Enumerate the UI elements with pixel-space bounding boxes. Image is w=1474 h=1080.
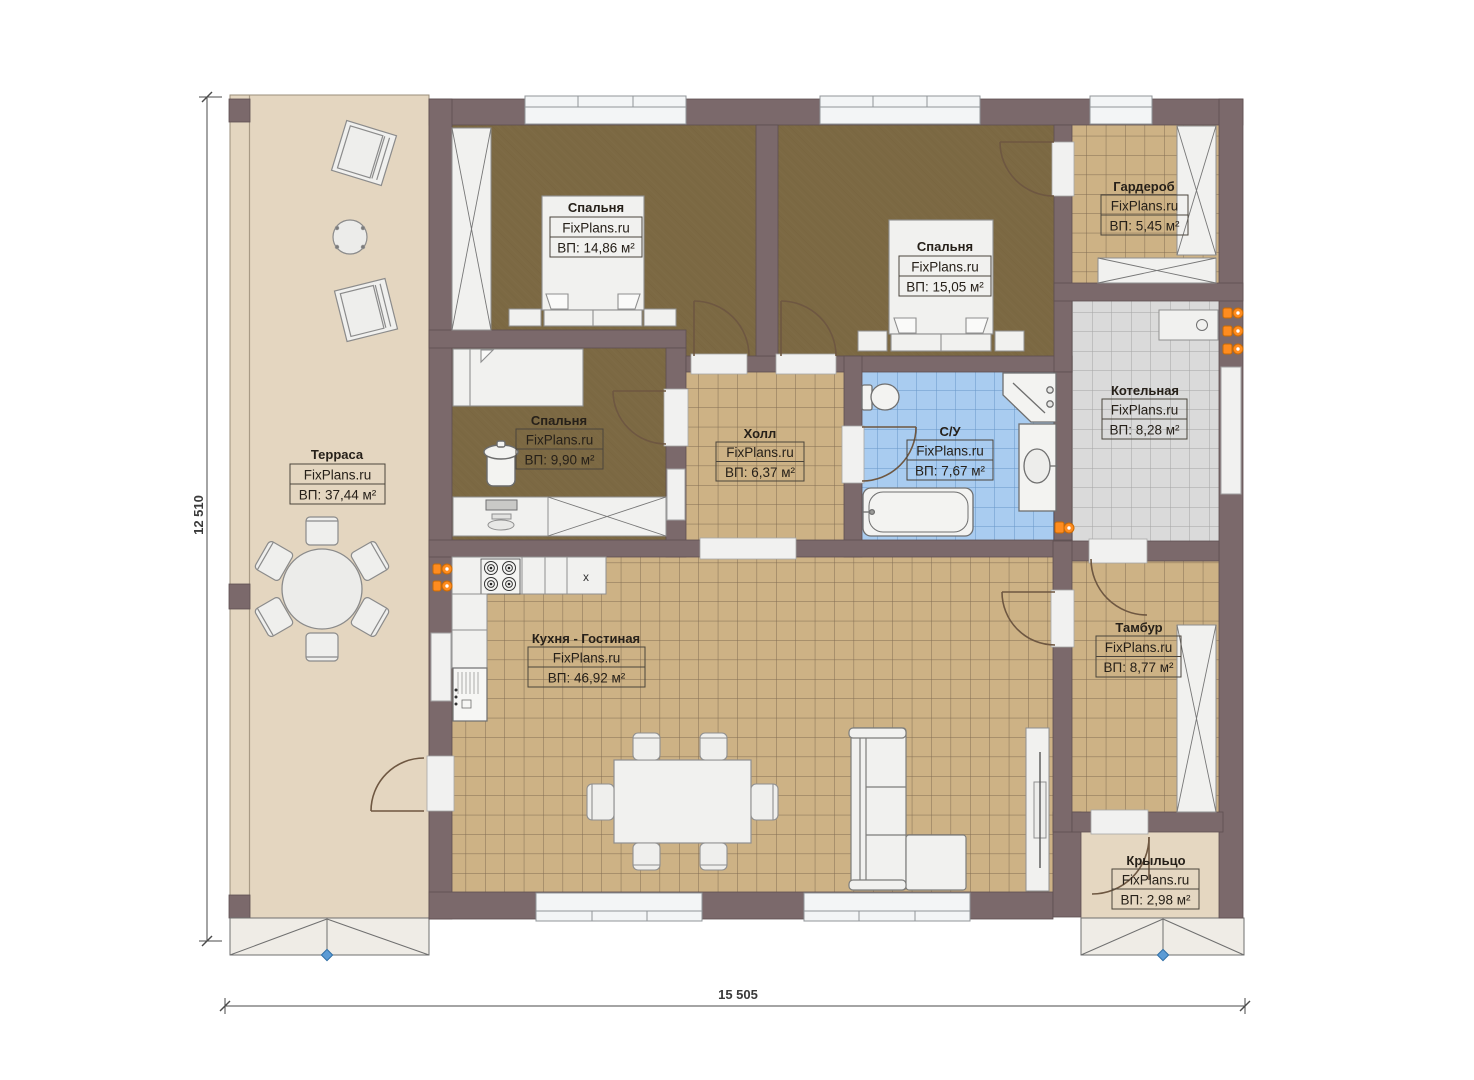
svg-text:ВП: 8,77 м²: ВП: 8,77 м² (1103, 660, 1174, 675)
svg-text:ВП: 5,45 м²: ВП: 5,45 м² (1109, 219, 1180, 234)
svg-text:FixPlans.ru: FixPlans.ru (304, 468, 372, 483)
svg-text:ВП: 6,37 м²: ВП: 6,37 м² (725, 465, 796, 480)
svg-text:FixPlans.ru: FixPlans.ru (1122, 873, 1190, 888)
svg-text:Спальня: Спальня (531, 413, 587, 428)
svg-text:Котельная: Котельная (1111, 383, 1179, 398)
svg-text:FixPlans.ru: FixPlans.ru (1111, 199, 1179, 214)
svg-text:Гардероб: Гардероб (1113, 179, 1174, 194)
svg-text:FixPlans.ru: FixPlans.ru (526, 433, 594, 448)
svg-text:х: х (583, 570, 589, 584)
svg-text:12 510: 12 510 (191, 495, 206, 535)
svg-text:ВП: 15,05 м²: ВП: 15,05 м² (906, 280, 984, 295)
svg-text:Холл: Холл (744, 426, 777, 441)
svg-text:ВП: 14,86 м²: ВП: 14,86 м² (557, 241, 635, 256)
svg-text:ВП: 7,67 м²: ВП: 7,67 м² (915, 464, 986, 479)
svg-text:FixPlans.ru: FixPlans.ru (562, 221, 630, 236)
svg-text:FixPlans.ru: FixPlans.ru (916, 444, 984, 459)
svg-text:Крыльцо: Крыльцо (1126, 853, 1185, 868)
svg-text:15 505: 15 505 (718, 987, 758, 1002)
svg-text:ВП: 2,98 м²: ВП: 2,98 м² (1120, 893, 1191, 908)
svg-text:ВП: 37,44 м²: ВП: 37,44 м² (299, 488, 377, 503)
svg-text:FixPlans.ru: FixPlans.ru (553, 651, 621, 666)
svg-text:FixPlans.ru: FixPlans.ru (1111, 403, 1179, 418)
svg-text:Тамбур: Тамбур (1115, 620, 1162, 635)
svg-text:FixPlans.ru: FixPlans.ru (726, 445, 794, 460)
svg-text:ВП: 46,92 м²: ВП: 46,92 м² (548, 671, 626, 686)
svg-text:FixPlans.ru: FixPlans.ru (1105, 640, 1173, 655)
svg-text:С/У: С/У (939, 424, 961, 439)
svg-text:Терраса: Терраса (311, 447, 364, 462)
svg-text:ВП: 8,28 м²: ВП: 8,28 м² (1109, 423, 1180, 438)
svg-text:Спальня: Спальня (568, 200, 624, 215)
svg-text:Кухня - Гостиная: Кухня - Гостиная (532, 631, 640, 646)
svg-text:ВП: 9,90 м²: ВП: 9,90 м² (524, 453, 595, 468)
svg-text:Спальня: Спальня (917, 239, 973, 254)
svg-text:FixPlans.ru: FixPlans.ru (911, 260, 979, 275)
